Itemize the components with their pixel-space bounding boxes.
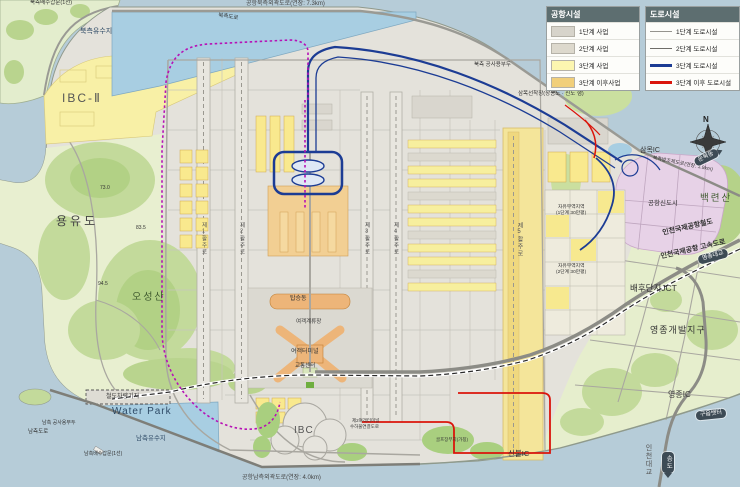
airport-masterplan-map: 공항북측외곽도로(연장: 7.3km) 북측배수갑문(1선) 북측유수지 북측도… (0, 0, 740, 487)
legend-row: 3단계 이후 도로시설 (646, 73, 739, 90)
label-shinbul-ic: 신불IC (508, 450, 529, 458)
label-free-trade-2b: (2단계 30만평) (556, 271, 586, 276)
legend-item-label: 1단계 사업 (579, 26, 608, 36)
label-boarding-concourse: 탑승동 (290, 296, 307, 302)
label-north-outer-road: 공항북측외곽도로(연장: 7.3km) (246, 1, 325, 7)
label-south-side-road: 남측도로 (28, 430, 48, 436)
label-runway3: 제3활주로 (363, 222, 369, 255)
label-yeongjong-dev: 영종개발지구 (650, 326, 706, 335)
label-north-sluice: 북측배수갑문(1선) (30, 1, 72, 7)
legend-airport-facilities: 공항시설 1단계 사업 2단계 사업 3단계 사업 3단계 이후사업 (546, 6, 640, 91)
legend-road-facilities: 도로시설 1단계 도로시설 2단계 도로시설 3단계 도로시설 3단계 이후 도… (645, 6, 740, 91)
swatch-phase3 (551, 60, 575, 71)
legend-item-label: 1단계 도로시설 (676, 26, 717, 36)
legend-item-label: 2단계 도로시설 (676, 43, 717, 53)
legend-row: 2단계 사업 (547, 39, 639, 56)
label-baeknyeonsan: 백련산 (700, 194, 732, 204)
label-free-trade-1b: (1단계 30만평) (556, 212, 586, 217)
line-swatch-phase2 (650, 48, 672, 49)
label-water-park: Water Park (112, 407, 172, 417)
label-oseongsan: 오성산 (132, 293, 166, 303)
label-baehudanji-jct: 배후단지JCT (630, 284, 677, 293)
legend-row: 1단계 도로시설 (646, 22, 739, 39)
label-north-dock: 북측 공사용부두 (474, 63, 511, 69)
label-sammok-dock: 삼목선착장(장봉도 · 신도 행) (518, 92, 584, 98)
label-south-outer-road: 공항남측외곽도로(연장: 4.0km) (242, 475, 321, 481)
label-south-dock: 남측 공사용부두 (42, 421, 76, 426)
legend-row: 1단계 사업 (547, 22, 639, 39)
terminal2-zone (268, 186, 348, 256)
legend-airport-title: 공항시설 (547, 7, 639, 22)
label-runway5: 제5활주로 (516, 222, 522, 257)
legend-row: 3단계 사업 (547, 56, 639, 73)
label-runway1: 제1활주로 (200, 222, 206, 255)
legend-item-label: 3단계 사업 (579, 60, 608, 70)
label-elevation-2: 83.5 (136, 226, 146, 231)
label-passenger-apron: 여객계류장 (296, 320, 321, 326)
label-south-reservoir: 남측유수지 (136, 436, 166, 443)
legend-row: 3단계 도로시설 (646, 56, 739, 73)
swatch-phase2 (551, 43, 575, 54)
legend-item-label: 3단계 이후 도로시설 (676, 77, 731, 87)
legend-item-label: 3단계 이후사업 (579, 77, 620, 87)
legend-item-label: 3단계 도로시설 (676, 60, 717, 70)
legend-road-title: 도로시설 (646, 7, 739, 22)
label-south-sluice: 남측배수갑문(1선) (84, 452, 122, 457)
label-ibc1: IBC (294, 426, 314, 436)
legend-item-label: 2단계 사업 (579, 43, 608, 53)
label-airport-newtown: 공항신도시 (648, 201, 678, 208)
label-golf-site: 골프장부지(가칭) (436, 438, 468, 443)
label-ibc2: IBC-Ⅱ (62, 92, 102, 104)
label-passenger-terminal: 여객터미널 (291, 349, 319, 355)
swatch-phase1 (551, 26, 575, 37)
label-north-reservoir: 북측유수지 (80, 28, 112, 35)
label-t2-baggage-road-1: 제2여객터미널 (352, 419, 379, 424)
label-t2-baggage-road-2: 수하물연결도로 (350, 425, 379, 430)
label-rail-depot: 철도차량기지 (106, 394, 139, 400)
label-elevation-1: 73.0 (100, 186, 110, 191)
legend-row: 3단계 이후사업 (547, 73, 639, 90)
label-runway2: 제2활주로 (238, 222, 244, 255)
label-runway4: 제4활주로 (392, 222, 398, 255)
legend-row: 2단계 도로시설 (646, 39, 739, 56)
line-swatch-phase3 (650, 64, 672, 67)
label-yongyudo: 용유도 (56, 215, 98, 227)
line-swatch-phase1 (650, 31, 672, 32)
label-elevation-3: 94.5 (98, 282, 108, 287)
badge-songdo: 송도 (662, 452, 674, 473)
label-sammok-ic: 삼목IC (640, 147, 660, 154)
label-transport-center: 교통센터 (295, 364, 315, 370)
swatch-post-phase3 (551, 77, 575, 88)
label-incheon-bridge: 인천대교 (645, 444, 652, 476)
line-swatch-post-phase3 (650, 81, 672, 84)
label-compass-north: N (703, 116, 709, 124)
label-yeongjong-ic: 영종IC (668, 391, 691, 399)
